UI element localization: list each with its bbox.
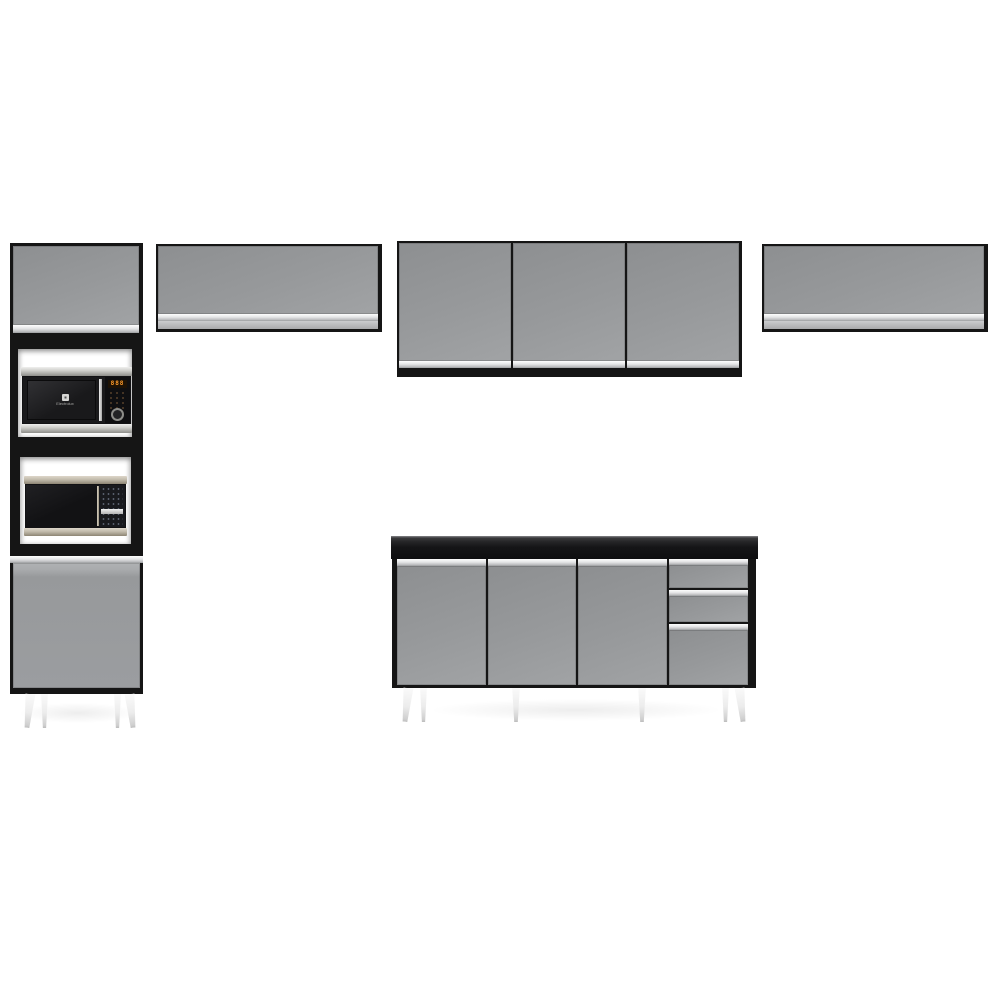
drawer-face — [669, 596, 748, 622]
wall-cabinet-left-handle — [158, 314, 378, 321]
microwave-door — [26, 485, 99, 527]
floor-shadow-base — [388, 696, 764, 724]
wall-cabinet-center-door-1 — [399, 243, 511, 368]
drawer-face — [669, 565, 748, 588]
drawer-1 — [669, 559, 748, 588]
wall-cabinet-left — [156, 244, 382, 332]
drawer-3 — [669, 624, 748, 685]
door-face — [513, 243, 625, 361]
door-handle — [488, 559, 577, 566]
base-cabinet-door-1 — [397, 559, 486, 685]
microwave-body: Electrolux 888 — [22, 376, 131, 424]
microwave-frame-bottom — [24, 528, 127, 536]
drawer-stack — [669, 559, 748, 685]
base-cabinet-door-3 — [578, 559, 667, 685]
tower-lower-door — [13, 563, 140, 688]
tower-upper-door-handle — [13, 325, 139, 333]
microwave-control-panel: 888 — [105, 377, 130, 423]
wall-cabinet-center — [397, 241, 742, 377]
door-handle — [399, 361, 511, 368]
door-face — [397, 566, 486, 685]
countertop — [391, 536, 758, 559]
microwave-frame-bottom — [21, 424, 132, 433]
base-cabinet-door-2 — [488, 559, 577, 685]
door-face — [488, 566, 577, 685]
door-handle — [627, 361, 739, 368]
scene: Electrolux 888 — [0, 0, 1000, 1000]
electrolux-mark-icon — [62, 394, 69, 401]
microwave-display: 888 — [108, 380, 127, 388]
microwave-control-panel — [99, 485, 125, 527]
door-handle — [578, 559, 667, 566]
drawer-face — [669, 630, 748, 685]
microwave-upper: Electrolux 888 — [22, 367, 131, 433]
microwave-knob — [111, 408, 124, 421]
microwave-door: Electrolux — [23, 377, 105, 423]
microwave-display — [101, 509, 123, 514]
door-handle — [513, 361, 625, 368]
electrolux-logo: Electrolux — [53, 394, 77, 406]
microwave-frame-top — [24, 476, 127, 484]
base-cabinet — [392, 536, 756, 688]
door-face — [399, 243, 511, 361]
tower-upper-door — [13, 246, 139, 325]
microwave-body — [25, 484, 126, 528]
door-face — [578, 566, 667, 685]
microwave-lower — [25, 476, 126, 536]
door-handle — [397, 559, 486, 566]
microwave-frame-top — [21, 367, 132, 376]
tower-lower-door-handle — [10, 556, 143, 563]
drawer-2 — [669, 590, 748, 622]
microwave-handle — [99, 379, 102, 421]
door-face — [627, 243, 739, 361]
tower-cabinet — [10, 243, 143, 694]
microwave-keypad — [101, 487, 123, 525]
wall-cabinet-right-door — [764, 246, 984, 314]
wall-cabinet-right-trim — [764, 321, 984, 329]
wall-cabinet-right — [762, 244, 988, 332]
wall-cabinet-left-trim — [158, 321, 378, 329]
wall-cabinet-center-door-3 — [627, 243, 739, 368]
wall-cabinet-left-door — [158, 246, 378, 314]
wall-cabinet-right-handle — [764, 314, 984, 321]
electrolux-logo-text: Electrolux — [53, 402, 77, 406]
wall-cabinet-center-door-2 — [513, 243, 625, 368]
